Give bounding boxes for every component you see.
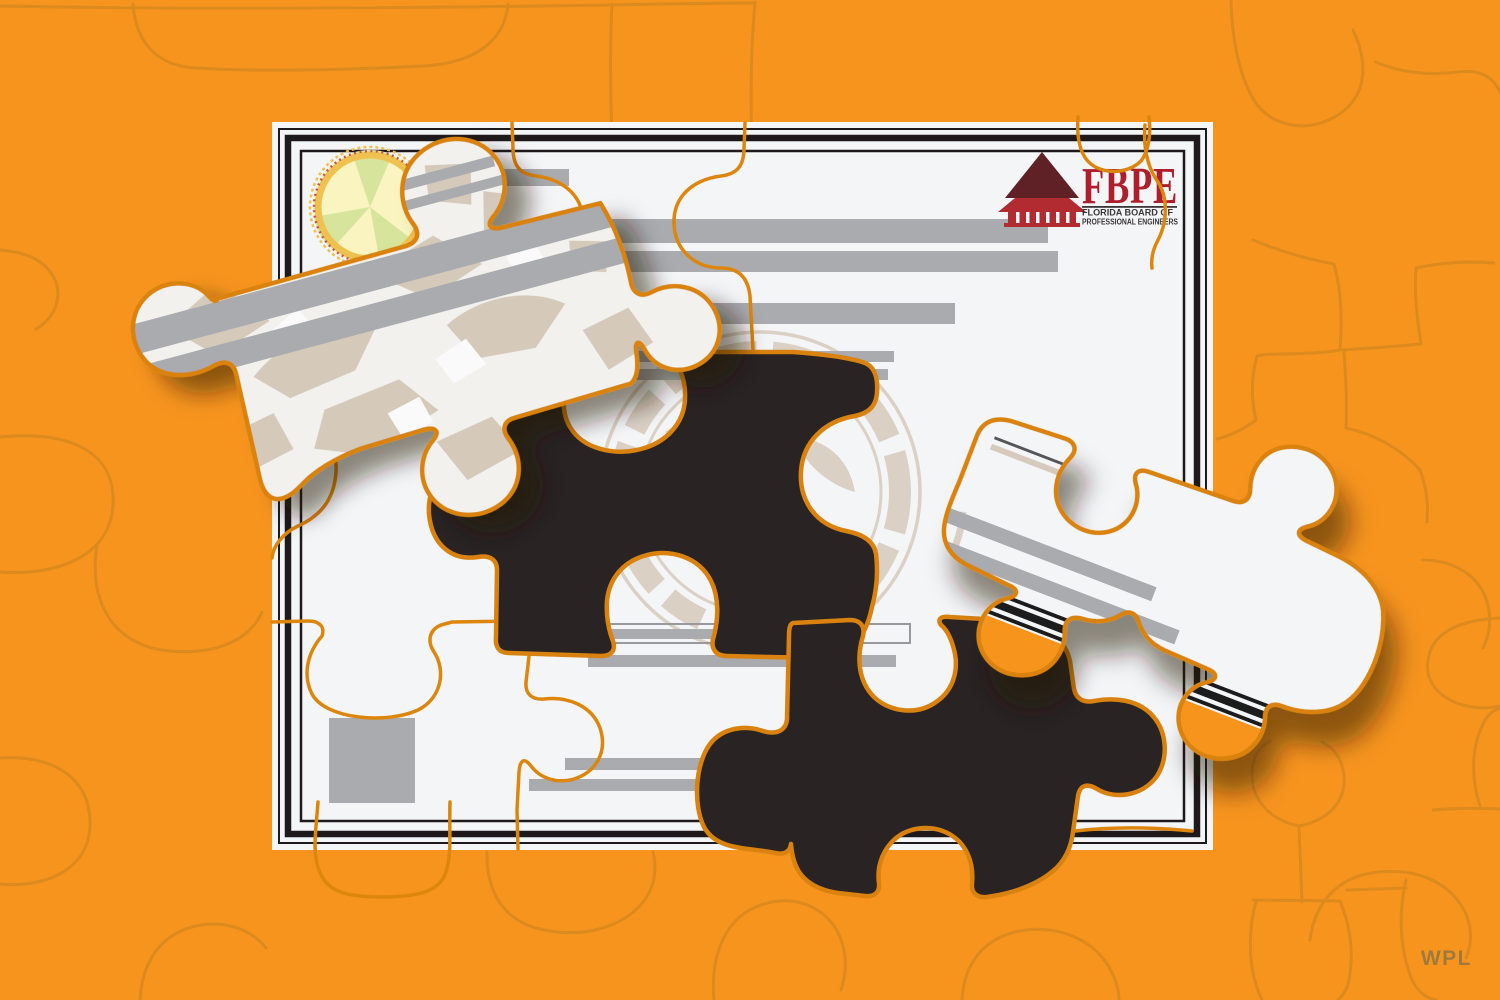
wpl-watermark: WPL	[1421, 947, 1472, 970]
puzzle-illustration: FBPE FLORIDA BOARD OF PROFESSIONAL ENGIN…	[0, 0, 1500, 1000]
stamp-placeholder-square	[329, 718, 415, 803]
